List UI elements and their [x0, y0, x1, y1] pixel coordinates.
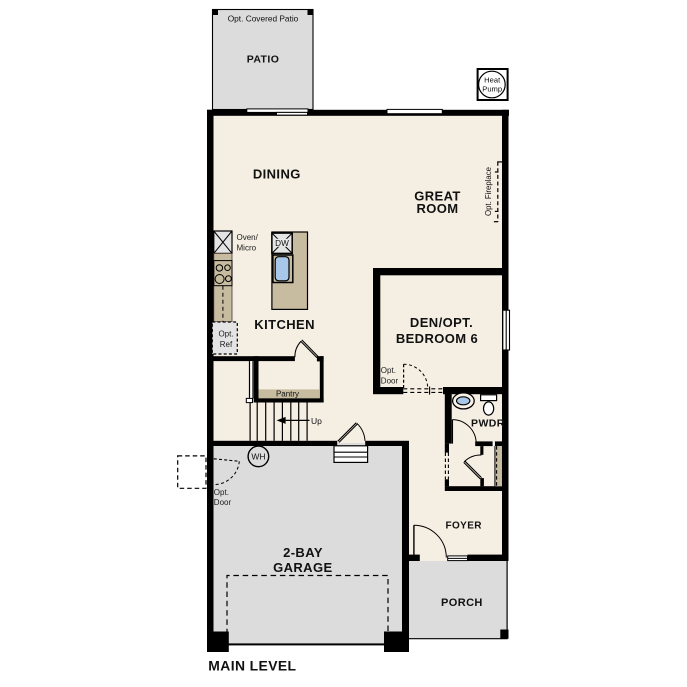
svg-text:Pantry: Pantry [276, 390, 299, 399]
svg-text:Door: Door [381, 376, 399, 385]
svg-text:Oven/: Oven/ [237, 233, 259, 242]
svg-text:MAIN LEVEL: MAIN LEVEL [208, 658, 296, 674]
svg-text:WH: WH [251, 451, 265, 461]
svg-text:FOYER: FOYER [445, 521, 482, 532]
svg-text:DW: DW [275, 239, 289, 248]
svg-text:PATIO: PATIO [247, 54, 280, 66]
svg-text:DEN/OPT.: DEN/OPT. [410, 315, 473, 330]
svg-text:Opt.: Opt. [381, 366, 396, 375]
svg-text:DINING: DINING [253, 166, 301, 181]
svg-text:Opt.: Opt. [218, 330, 233, 339]
svg-text:BEDROOM 6: BEDROOM 6 [396, 331, 478, 346]
svg-text:Ref: Ref [220, 340, 233, 349]
svg-text:Door: Door [214, 498, 232, 507]
svg-text:KITCHEN: KITCHEN [254, 317, 315, 332]
svg-text:PORCH: PORCH [441, 597, 483, 609]
svg-text:Up: Up [311, 416, 322, 426]
svg-text:Opt.: Opt. [214, 488, 229, 497]
svg-text:Opt. Fireplace: Opt. Fireplace [484, 167, 493, 216]
svg-text:GARAGE: GARAGE [273, 560, 332, 575]
svg-text:Micro: Micro [237, 244, 257, 253]
svg-text:PWDR: PWDR [471, 417, 505, 429]
svg-text:Heat: Heat [484, 75, 501, 84]
svg-text:ROOM: ROOM [416, 201, 458, 216]
svg-text:Pump: Pump [482, 84, 502, 93]
svg-text:Opt. Covered Patio: Opt. Covered Patio [228, 14, 299, 24]
svg-text:2-BAY: 2-BAY [283, 545, 323, 560]
